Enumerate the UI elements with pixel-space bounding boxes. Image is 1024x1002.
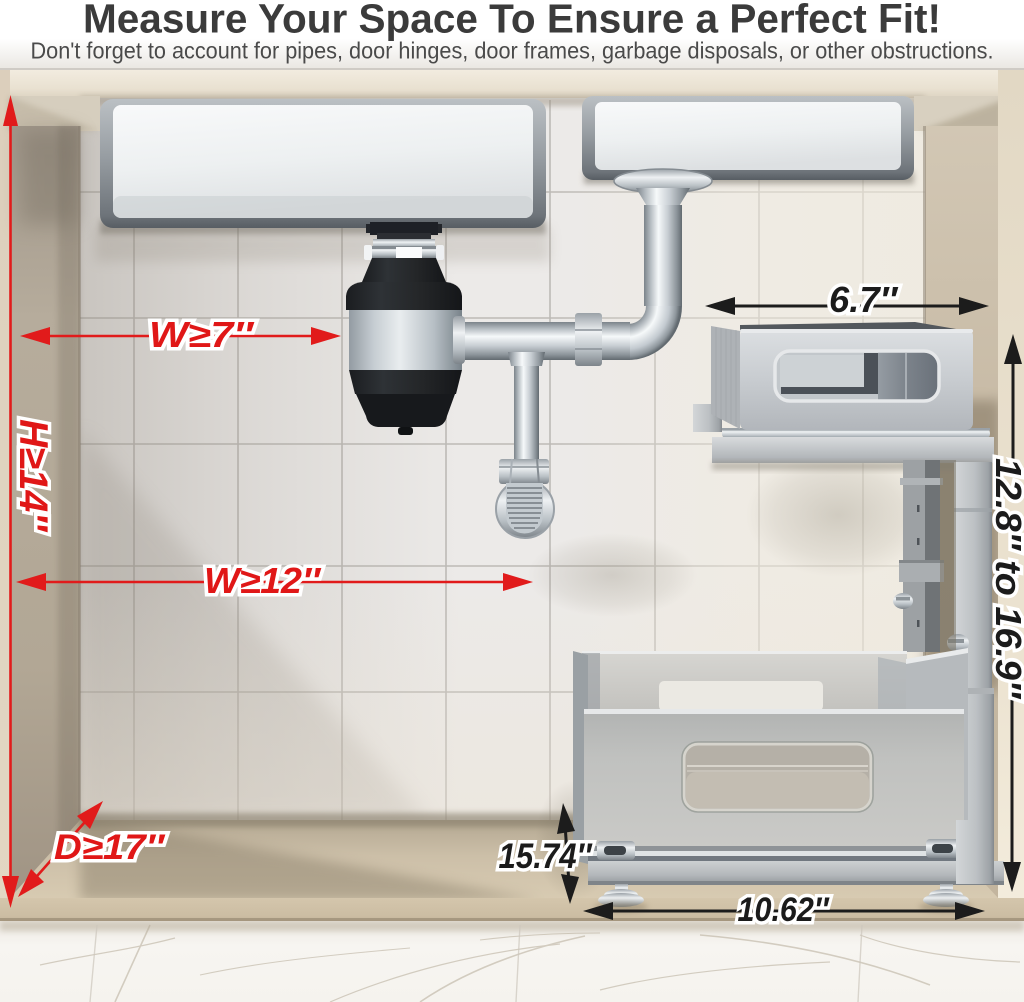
svg-text:6.7″: 6.7″: [829, 279, 899, 320]
svg-text:Measure Your Space To Ensure a: Measure Your Space To Ensure a Perfect F…: [83, 0, 941, 42]
svg-text:15.74″: 15.74″: [499, 837, 594, 876]
svg-text:W≥12″: W≥12″: [204, 560, 322, 601]
svg-text:W≥7″: W≥7″: [149, 314, 255, 355]
svg-text:12.8″ to 16.9″: 12.8″ to 16.9″: [988, 458, 1024, 700]
svg-text:10.62″: 10.62″: [738, 891, 831, 929]
svg-text:Don't forget to account for pi: Don't forget to account for pipes, door …: [31, 38, 994, 64]
svg-text:D≥17″: D≥17″: [54, 828, 166, 867]
svg-text:H≥14″: H≥14″: [11, 419, 55, 533]
